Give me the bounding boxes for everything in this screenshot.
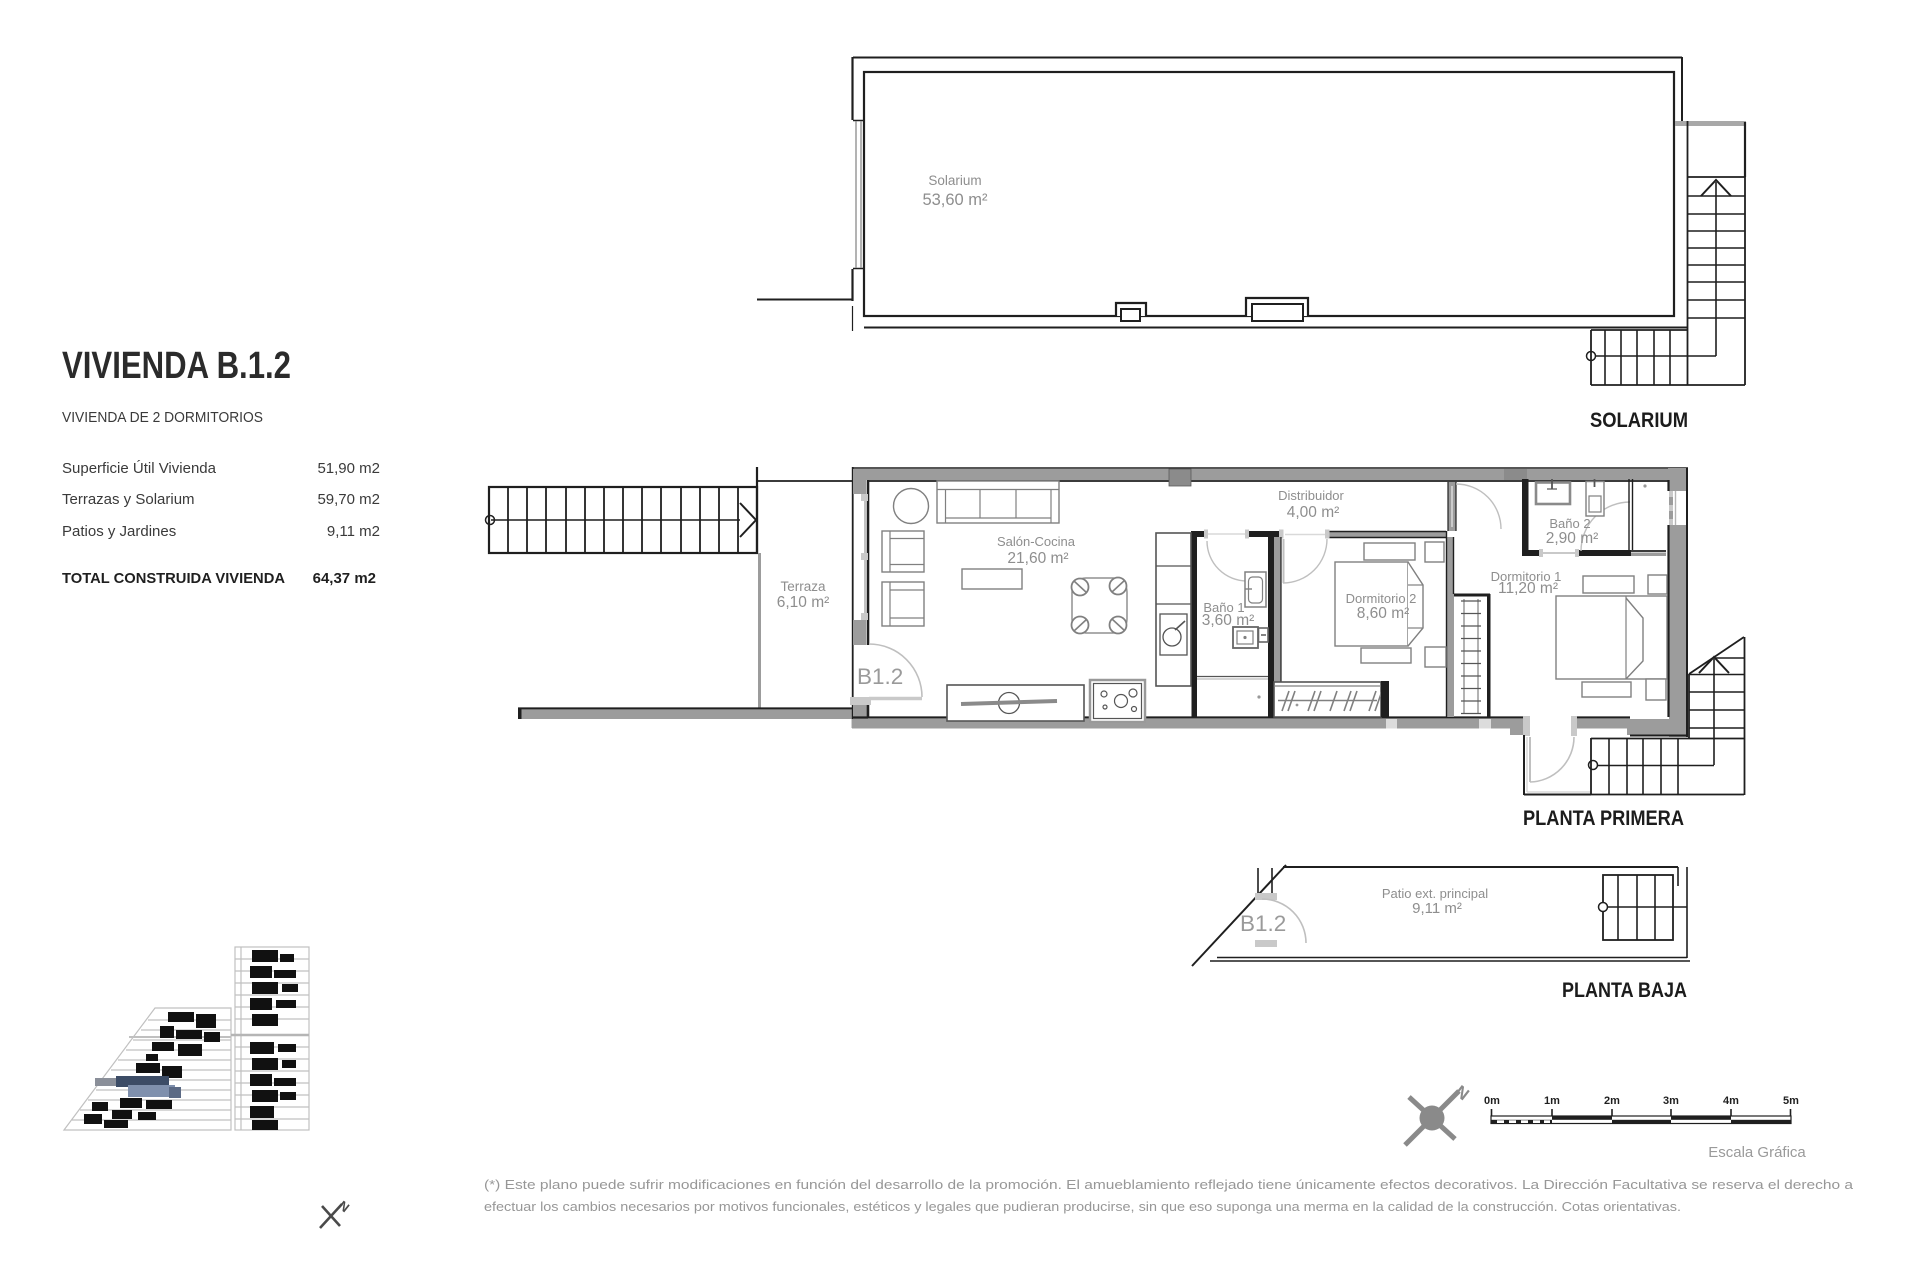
svg-text:8,60 m²: 8,60 m² xyxy=(1357,605,1410,622)
svg-text:64,37 m2: 64,37 m2 xyxy=(313,570,376,587)
svg-text:Salón-Cocina: Salón-Cocina xyxy=(997,534,1076,549)
svg-text:Superficie Útil Vivienda: Superficie Útil Vivienda xyxy=(62,460,217,477)
svg-text:Escala Gráfica: Escala Gráfica xyxy=(1708,1144,1806,1161)
svg-text:6,10 m²: 6,10 m² xyxy=(777,594,830,611)
svg-text:Dormitorio 2: Dormitorio 2 xyxy=(1346,591,1417,606)
svg-text:0m: 0m xyxy=(1484,1095,1500,1107)
svg-text:2,90 m²: 2,90 m² xyxy=(1546,530,1599,547)
svg-text:9,11 m2: 9,11 m2 xyxy=(327,523,380,540)
svg-text:9,11 m²: 9,11 m² xyxy=(1412,900,1462,917)
svg-text:4m: 4m xyxy=(1723,1095,1739,1107)
svg-text:B1.2: B1.2 xyxy=(1240,911,1286,936)
svg-text:Terraza: Terraza xyxy=(780,579,826,594)
svg-text:3,60 m²: 3,60 m² xyxy=(1202,612,1255,629)
svg-text:Baño 2: Baño 2 xyxy=(1549,516,1590,531)
svg-text:efectuar los cambios necesario: efectuar los cambios necesarios por moti… xyxy=(484,1199,1681,1214)
svg-text:PLANTA BAJA: PLANTA BAJA xyxy=(1562,979,1687,1002)
svg-text:5m: 5m xyxy=(1783,1095,1799,1107)
svg-text:Solarium: Solarium xyxy=(928,173,981,188)
svg-text:51,90 m2: 51,90 m2 xyxy=(317,460,380,477)
svg-text:3m: 3m xyxy=(1663,1095,1679,1107)
svg-text:Patios y Jardines: Patios y Jardines xyxy=(62,523,176,540)
svg-text:(*) Este plano puede sufrir mo: (*) Este plano puede sufrir modificacion… xyxy=(484,1177,1854,1192)
svg-text:21,60 m²: 21,60 m² xyxy=(1007,550,1068,567)
svg-text:VIVIENDA DE 2 DORMITORIOS: VIVIENDA DE 2 DORMITORIOS xyxy=(62,410,263,426)
svg-text:59,70 m2: 59,70 m2 xyxy=(317,491,380,508)
svg-text:Terrazas y Solarium: Terrazas y Solarium xyxy=(62,491,195,508)
svg-text:SOLARIUM: SOLARIUM xyxy=(1590,409,1688,432)
svg-text:53,60 m²: 53,60 m² xyxy=(922,191,988,209)
svg-text:VIVIENDA B.1.2: VIVIENDA B.1.2 xyxy=(62,345,291,387)
svg-text:Patio ext. principal: Patio ext. principal xyxy=(1382,886,1488,901)
svg-text:4,00 m²: 4,00 m² xyxy=(1287,504,1340,521)
svg-text:PLANTA PRIMERA: PLANTA PRIMERA xyxy=(1523,807,1684,830)
svg-text:1m: 1m xyxy=(1544,1095,1560,1107)
svg-text:B1.2: B1.2 xyxy=(857,664,903,689)
svg-text:TOTAL CONSTRUIDA VIVIENDA: TOTAL CONSTRUIDA VIVIENDA xyxy=(62,570,285,587)
svg-text:2m: 2m xyxy=(1604,1095,1620,1107)
svg-text:11,20 m²: 11,20 m² xyxy=(1498,580,1558,597)
svg-text:Distribuidor: Distribuidor xyxy=(1278,488,1344,503)
